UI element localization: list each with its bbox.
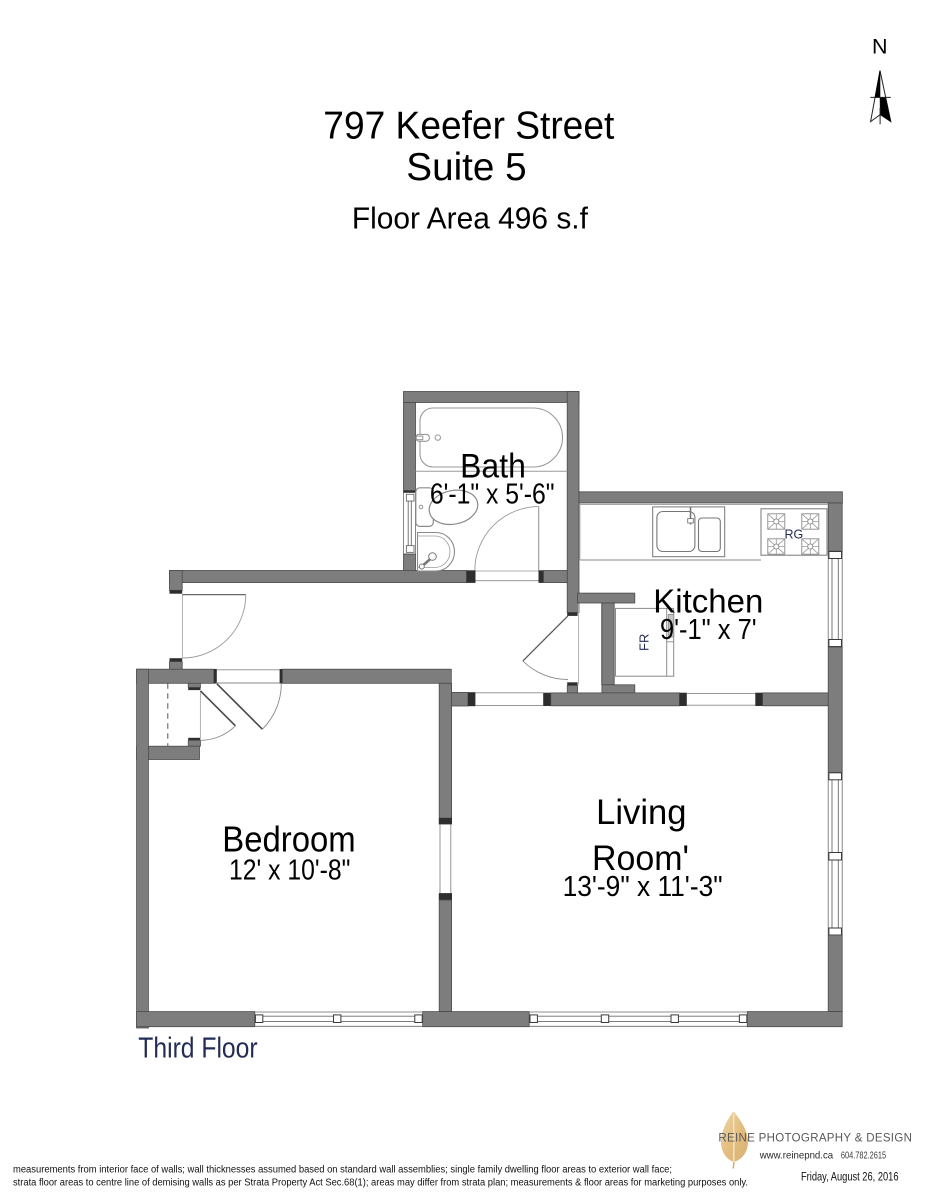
svg-text:RG: RG	[785, 528, 804, 542]
svg-text:Friday, August 26, 2016: Friday, August 26, 2016	[801, 1169, 899, 1183]
svg-text:Suite 5: Suite 5	[406, 146, 526, 189]
svg-text:Third Floor: Third Floor	[138, 1032, 258, 1064]
svg-text:13'-9" x 11'-3": 13'-9" x 11'-3"	[563, 871, 723, 903]
svg-text:Living: Living	[596, 792, 686, 832]
svg-text:strata floor areas to centre l: strata floor areas to centre line of dem…	[13, 1178, 748, 1189]
svg-text:Bedroom: Bedroom	[222, 819, 355, 860]
svg-text:www.reinepnd.ca: www.reinepnd.ca	[759, 1150, 834, 1161]
svg-text:12' x 10'-8": 12' x 10'-8"	[229, 855, 350, 887]
svg-text:9'-1" x 7': 9'-1" x 7'	[660, 614, 757, 646]
svg-text:797 Keefer Street: 797 Keefer Street	[323, 105, 614, 148]
svg-text:REINE PHOTOGRAPHY & DESIGN: REINE PHOTOGRAPHY & DESIGN	[718, 1133, 912, 1145]
svg-text:604.782.2615: 604.782.2615	[841, 1150, 886, 1161]
svg-text:6'-1" x 5'-6": 6'-1" x 5'-6"	[430, 479, 555, 511]
svg-text:FR: FR	[637, 634, 652, 651]
svg-text:measurements from interior fac: measurements from interior face of walls…	[13, 1164, 672, 1175]
svg-text:Floor Area 496 s.f: Floor Area 496 s.f	[352, 201, 589, 235]
svg-text:N: N	[872, 35, 888, 59]
